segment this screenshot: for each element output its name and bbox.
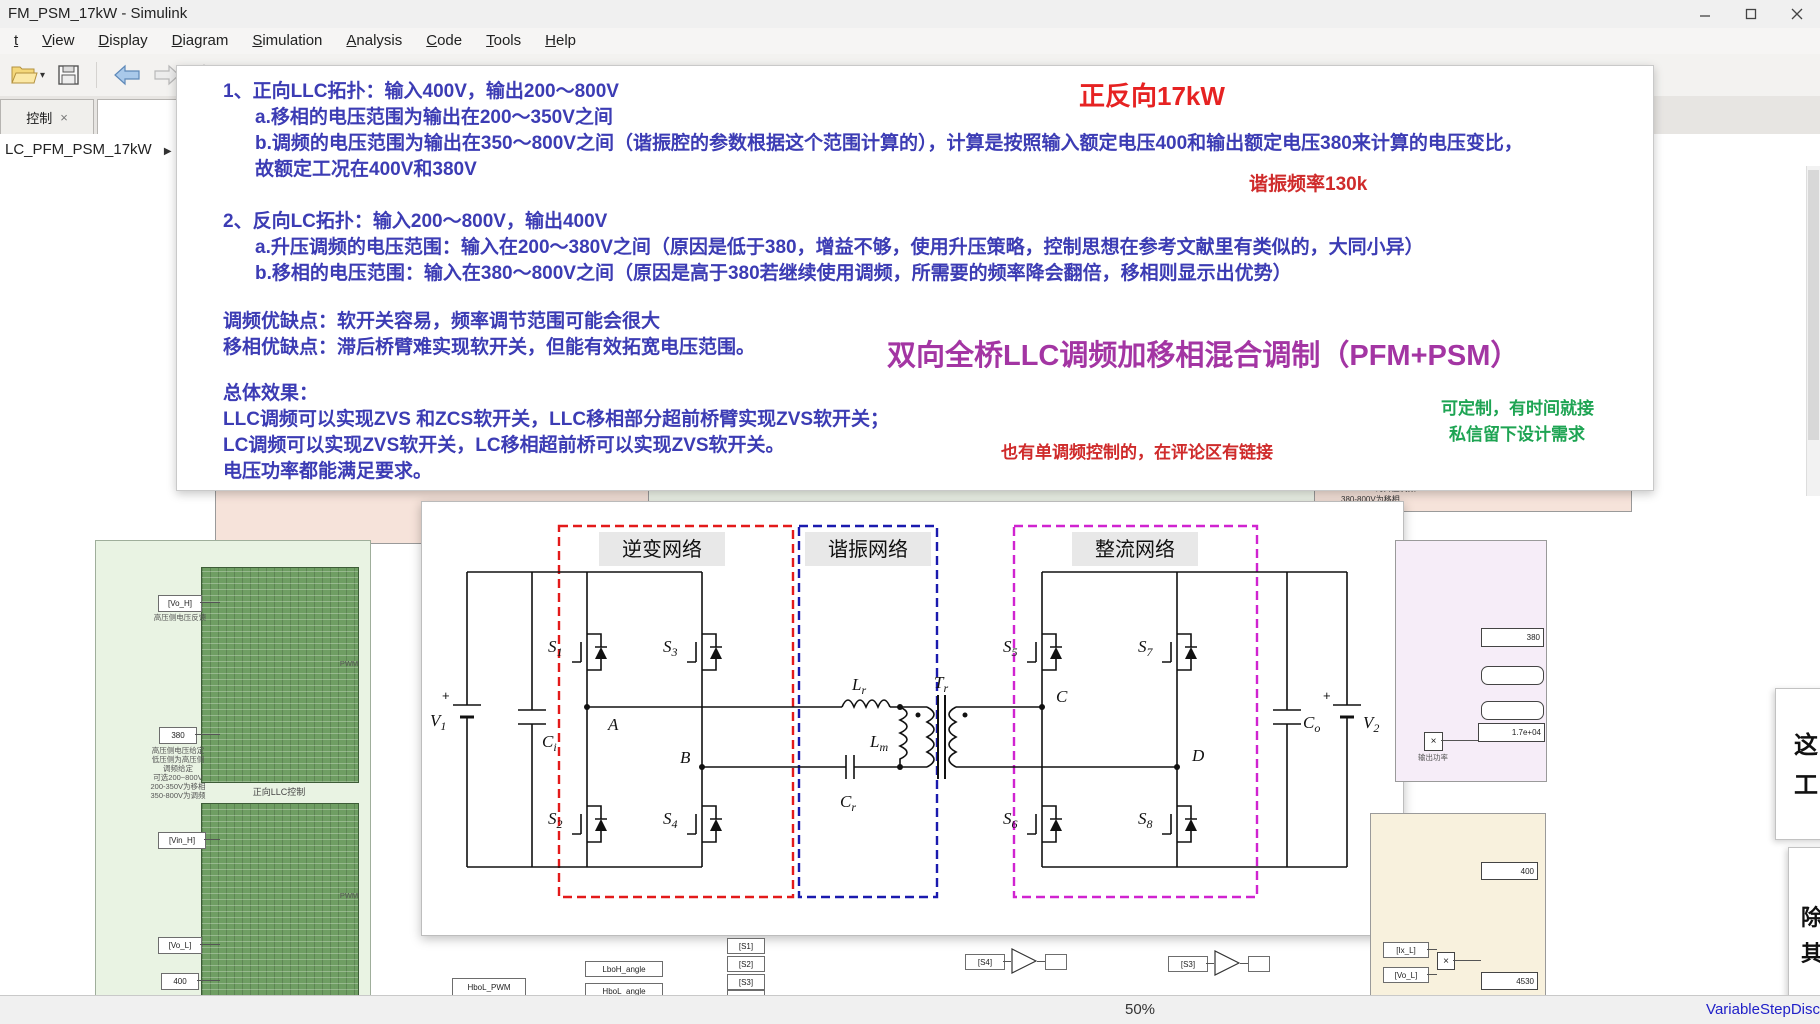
node-b-dot: [699, 764, 705, 770]
menu-help[interactable]: Help: [533, 28, 588, 54]
rectifier-label: 整流网络: [1095, 538, 1175, 561]
llc-circuit-svg: 逆变网络 谐振网络 整流网络: [422, 502, 1403, 935]
annotation-red-title: 正反向17kW: [1079, 76, 1225, 113]
annotation-sec1-a: a.移相的电压范围为输出在200～350V之间: [255, 102, 613, 129]
constant-block-400[interactable]: 400: [161, 973, 199, 990]
menu-bar: t View Display Diagram Simulation Analys…: [0, 28, 1820, 54]
low-voltage-measure-panel[interactable]: 400 [Ix_L] [Vo_L] × 4530: [1370, 813, 1546, 996]
switch-s6: [1027, 799, 1062, 849]
zoom-level: 50%: [1125, 996, 1155, 1023]
goto-tag-s1[interactable]: [S1]: [727, 938, 765, 954]
switch-s4: [687, 799, 722, 849]
annotation-resonant-note: 谐振频率130k: [1249, 169, 1367, 196]
scope-block[interactable]: [1481, 666, 1544, 685]
solver-link[interactable]: VariableStepDisc: [1706, 996, 1820, 1023]
resonant-section-box: [799, 526, 937, 897]
node-d-label: D: [1191, 746, 1205, 765]
gain-block[interactable]: [1011, 948, 1037, 974]
back-button[interactable]: [113, 64, 141, 86]
signal-wire: [1206, 963, 1214, 964]
goto-tag-hbol-pwm[interactable]: HboL_PWM: [452, 978, 526, 996]
switch-s7: [1162, 627, 1197, 677]
node-d-dot: [1174, 764, 1180, 770]
control-panel-area[interactable]: 正向LLC控制 [Vo_H] 高压侧电压反馈 380 高压侧电压给定 低压侧为高…: [95, 540, 371, 996]
s6-label: S6: [1003, 809, 1018, 831]
back-arrow-icon: [113, 64, 141, 86]
ci-label: Ci: [542, 732, 557, 754]
title-bar: FM_PSM_17kW - Simulink: [0, 0, 1820, 29]
scope-block[interactable]: [1481, 701, 1544, 720]
signal-wire: [1003, 961, 1011, 962]
v2-label: V2: [1363, 713, 1379, 735]
status-bar: 50% VariableStepDisc: [0, 995, 1820, 1024]
from-tag-s4[interactable]: [S4]: [965, 954, 1005, 970]
s5-label: S5: [1003, 637, 1018, 659]
tab-control[interactable]: 控制 ×: [0, 99, 94, 134]
from-tag-s3[interactable]: [S3]: [1168, 956, 1208, 972]
co-label: Co: [1303, 713, 1320, 735]
from-tag-vo-h[interactable]: [Vo_H]: [158, 595, 202, 612]
signal-wire: [1037, 961, 1045, 962]
constant-caption-line: 200-350V为移相: [134, 782, 222, 791]
annotation-green-note2: 私信留下设计需求: [1449, 420, 1585, 445]
co-capacitor: [1273, 572, 1301, 867]
breadcrumb[interactable]: LC_PFM_PSM_17kW ▶: [5, 134, 172, 168]
measurement-panel[interactable]: 380 1.7e+04 × 输出功率: [1395, 540, 1547, 782]
note-card-2-line2: 其: [1801, 936, 1820, 968]
outport-block[interactable]: [1248, 956, 1270, 972]
display-block-380[interactable]: 380: [1481, 628, 1544, 647]
signal-wire: [204, 839, 220, 840]
s1-label: S1: [548, 637, 563, 659]
annotation-sec1-title: 1、正向LLC拓扑：输入400V，输出200～800V: [223, 76, 619, 103]
s8-label: S8: [1138, 809, 1153, 831]
toolbar-separator: [96, 62, 97, 88]
menu-code[interactable]: Code: [414, 28, 474, 54]
constant-caption-line: 350-800V为调频: [134, 791, 222, 800]
resonant-label: 谐振网络: [828, 538, 908, 561]
annotation-sec1-b: b.调频的电压范围为输出在350～800V之间（谐振腔的参数根据这个范围计算的）…: [255, 128, 1523, 155]
from-tag-vin-h[interactable]: [Vin_H]: [158, 832, 206, 849]
lm-inductor: [900, 707, 907, 767]
tab-control-label: 控制: [26, 108, 52, 127]
maximize-button[interactable]: [1728, 0, 1774, 28]
constant-caption-line: 可选200~800V: [134, 773, 222, 782]
constant-caption-line: 调频给定: [134, 764, 222, 773]
switch-s5: [1027, 627, 1062, 677]
display-block-power[interactable]: 1.7e+04: [1478, 723, 1545, 742]
inverter-label: 逆变网络: [622, 538, 702, 561]
minimize-button[interactable]: [1682, 0, 1728, 28]
signal-wire: [1441, 740, 1478, 741]
node-c-label: C: [1056, 687, 1068, 706]
subsystem-block-forward-llc[interactable]: [201, 567, 359, 783]
v2-battery: [1333, 572, 1361, 867]
vertical-scrollbar[interactable]: [1806, 166, 1820, 496]
transformer-secondary: [949, 707, 956, 767]
subsystem-caption: 正向LLC控制: [201, 785, 357, 798]
port-label-pwm: PWM: [332, 659, 366, 668]
display-block-4530[interactable]: 4530: [1481, 972, 1538, 990]
node-b-label: B: [680, 748, 691, 767]
node-a-label: A: [607, 715, 619, 734]
llc-topology-figure[interactable]: 逆变网络 谐振网络 整流网络: [421, 501, 1404, 936]
cr-label: Cr: [840, 792, 856, 814]
annotation-overall2: LC调频可以实现ZVS软开关，LC移相超前桥可以实现ZVS软开关。: [223, 430, 785, 457]
gain-block[interactable]: [1214, 950, 1240, 976]
display-block-400[interactable]: 400: [1481, 862, 1538, 880]
constant-caption-line: 高压侧电压给定: [134, 746, 222, 755]
annotation-purple-title: 双向全桥LLC调频加移相混合调制（PFM+PSM）: [887, 332, 1519, 374]
from-tag-vo-l[interactable]: [Vo_L]: [1383, 967, 1429, 983]
constant-caption-line: 低压侧为高压侧: [134, 755, 222, 764]
transformer-primary: [927, 707, 934, 767]
signal-wire: [1240, 963, 1248, 964]
transformer-core: [938, 695, 945, 779]
scrollbar-thumb[interactable]: [1808, 170, 1819, 440]
signal-wire: [1453, 960, 1481, 961]
menu-simulation[interactable]: Simulation: [240, 28, 334, 54]
constant-block-380[interactable]: 380: [159, 727, 197, 744]
switch-s2: [572, 799, 607, 849]
signal-wire: [200, 602, 220, 603]
note-card-2[interactable]: 除 其: [1788, 847, 1820, 996]
note-card-1-line1: 这: [1794, 725, 1818, 760]
note-card-1-line2: 工: [1794, 765, 1818, 800]
b-wire-cr-capacitor: [702, 755, 927, 779]
menu-diagram[interactable]: Diagram: [160, 28, 241, 54]
v1-label: V1: [430, 711, 446, 733]
s7-label: S7: [1138, 637, 1154, 659]
s3-label: S3: [663, 637, 678, 659]
annotation-sec2-a: a.升压调频的电压范围：输入在200～380V之间（原因是低于380，增益不够，…: [255, 232, 1424, 259]
lm-label: Lm: [869, 732, 888, 754]
signal-wire: [1427, 949, 1437, 950]
annotation-green-note1: 可定制，有时间就接: [1441, 394, 1594, 419]
folder-icon: [10, 64, 38, 86]
tab-close-icon[interactable]: ×: [60, 110, 68, 125]
switch-s1: [572, 627, 607, 677]
annotation-red-note: 也有单调频控制的，在评论区有链接: [1001, 438, 1273, 463]
product-block[interactable]: ×: [1437, 952, 1455, 970]
outport-block[interactable]: [1045, 954, 1067, 970]
signal-wire: [1427, 974, 1437, 975]
menu-analysis[interactable]: Analysis: [334, 28, 414, 54]
annotation-sec1-c: 故额定工况在400V和380V: [255, 154, 477, 181]
product-block[interactable]: ×: [1424, 732, 1443, 751]
annotation-overall-title: 总体效果：: [223, 378, 318, 405]
port-label-pwm: PWM: [332, 891, 366, 900]
window-controls: [1682, 0, 1820, 28]
product-caption: 输出功率: [1408, 753, 1458, 762]
lr-inductor: [842, 700, 890, 707]
annotation-pros1: 调频优缺点：软开关容易，频率调节范围可能会很大: [223, 306, 660, 333]
ci-capacitor: [518, 572, 546, 867]
annotation-overall1: LLC调频可以实现ZVS 和ZCS软开关，LLC移相部分超前桥臂实现ZVS软开关…: [223, 404, 889, 431]
from-tag-ix-l[interactable]: [Ix_L]: [1383, 942, 1429, 958]
save-icon: [57, 64, 80, 86]
menu-view[interactable]: View: [30, 28, 86, 54]
goto-tag-s3[interactable]: [S3]: [727, 974, 765, 990]
dc-rails: [467, 572, 1347, 867]
s2-label: S2: [548, 809, 563, 831]
v1-plus-sign: +: [442, 688, 450, 703]
node-a-dot: [584, 704, 590, 710]
tr-label: Tr: [934, 673, 948, 695]
signal-wire: [195, 734, 220, 735]
annotation-overall3: 电压功率都能满足要求。: [223, 456, 432, 483]
annotation-sec2-title: 2、反向LC拓扑：输入200～800V，输出400V: [223, 206, 607, 233]
simulink-window: FM_PSM_17kW - Simulink t View Display Di…: [0, 0, 1820, 1024]
cd-wires: [956, 707, 1177, 767]
menu-edit-partial[interactable]: t: [2, 28, 30, 54]
goto-tag-lboh-angle[interactable]: LboH_angle: [585, 961, 663, 977]
lr-label: Lr: [851, 675, 866, 697]
node-c-dot: [1039, 704, 1045, 710]
signal-wire: [197, 980, 220, 981]
minimize-icon: [1699, 8, 1711, 20]
maximize-icon: [1745, 8, 1757, 20]
save-button[interactable]: [57, 64, 80, 86]
close-button[interactable]: [1774, 0, 1820, 28]
note-card-1[interactable]: 这 工: [1775, 688, 1820, 840]
window-title: FM_PSM_17kW - Simulink: [8, 0, 187, 28]
lm-bottom-dot: [897, 764, 903, 770]
note-card-2-line1: 除: [1801, 900, 1820, 932]
v1-battery: [453, 572, 481, 867]
signal-wire: [200, 944, 220, 945]
secondary-dot: [963, 713, 968, 718]
lm-top-dot: [897, 704, 903, 710]
switch-s8: [1162, 799, 1197, 849]
breadcrumb-arrow-icon[interactable]: ▶: [164, 146, 172, 157]
annotation-overlay[interactable]: 1、正向LLC拓扑：输入400V，输出200～800V a.移相的电压范围为输出…: [176, 65, 1654, 491]
breadcrumb-model-name[interactable]: LC_PFM_PSM_17kW: [5, 141, 152, 158]
menu-display[interactable]: Display: [86, 28, 159, 54]
close-icon: [1791, 8, 1803, 20]
primary-dot: [916, 713, 921, 718]
v2-plus-sign: +: [1323, 688, 1331, 703]
annotation-sec2-b: b.移相的电压范围：输入在380～800V之间（原因是高于380若继续使用调频，…: [255, 258, 1292, 285]
tag-caption-vo-h: 高压侧电压反馈: [140, 613, 220, 622]
open-button[interactable]: ▾: [10, 64, 45, 86]
s4-label: S4: [663, 809, 678, 831]
menu-tools[interactable]: Tools: [474, 28, 533, 54]
open-dropdown-caret-icon[interactable]: ▾: [40, 70, 45, 81]
switch-s3: [687, 627, 722, 677]
annotation-pros2: 移相优缺点：滞后桥臂难实现软开关，但能有效拓宽电压范围。: [223, 332, 755, 359]
goto-tag-s2[interactable]: [S2]: [727, 956, 765, 972]
from-tag-vo-l[interactable]: [Vo_L]: [158, 937, 202, 954]
